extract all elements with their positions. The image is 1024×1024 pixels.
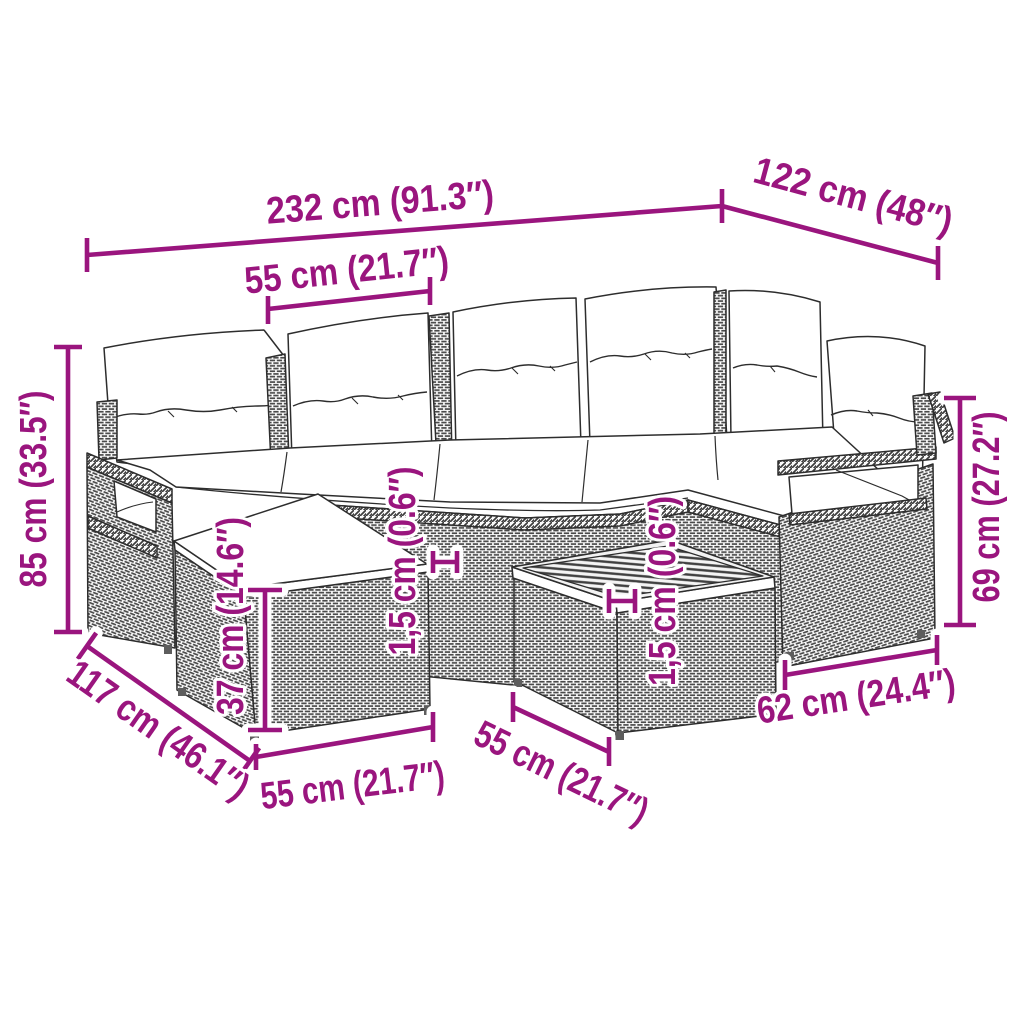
svg-text:1,5 cm (0.6″): 1,5 cm (0.6″) <box>382 467 424 656</box>
svg-text:37 cm (14.6″): 37 cm (14.6″) <box>210 517 252 715</box>
svg-text:69 cm (27.2″): 69 cm (27.2″) <box>966 412 1008 603</box>
svg-text:1,5 cm (0.6″): 1,5 cm (0.6″) <box>642 496 684 686</box>
svg-text:85 cm (33.5″): 85 cm (33.5″) <box>13 391 55 588</box>
